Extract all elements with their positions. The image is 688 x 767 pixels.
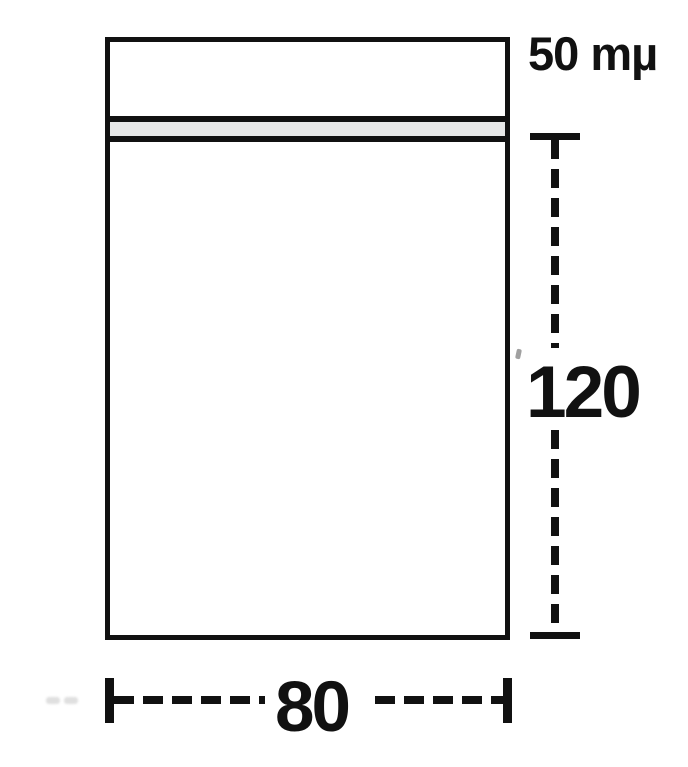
height-dimension-bottom-tick	[530, 632, 580, 639]
height-dimension-top-tick	[530, 133, 580, 140]
zip-strip	[110, 116, 505, 142]
scan-artifact-dash	[46, 697, 60, 704]
width-dimension-right-tick	[503, 678, 512, 723]
scan-artifact-dash	[64, 697, 78, 704]
height-label: 120	[520, 348, 645, 429]
width-dimension-left-tick	[105, 678, 114, 723]
thickness-label: 50 mµ	[528, 30, 657, 77]
width-label: 80	[265, 664, 372, 751]
diagram-canvas: 50 mµ 120 80	[0, 0, 688, 767]
